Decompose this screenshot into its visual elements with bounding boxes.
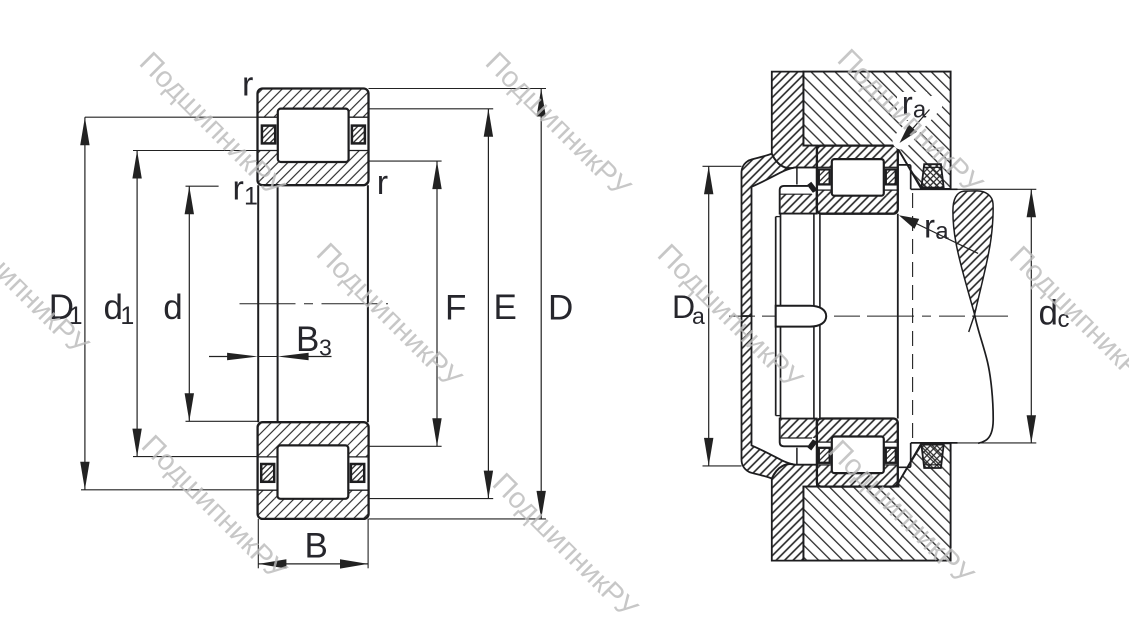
svg-text:B: B <box>296 320 319 359</box>
svg-text:ПодшипникРУ: ПодшипникРУ <box>486 467 644 625</box>
svg-text:F: F <box>445 289 466 328</box>
svg-text:3: 3 <box>319 335 332 361</box>
svg-text:ПодшипникРУ: ПодшипникРУ <box>1003 240 1129 398</box>
svg-text:D: D <box>548 289 573 328</box>
svg-text:ПодшипникРУ: ПодшипникРУ <box>0 204 95 362</box>
svg-text:a: a <box>935 218 949 245</box>
svg-text:B: B <box>305 527 328 566</box>
svg-text:ПодшипникРУ: ПодшипникРУ <box>479 46 637 204</box>
svg-text:1: 1 <box>120 302 134 330</box>
svg-text:d: d <box>163 288 182 327</box>
svg-text:r: r <box>924 208 935 245</box>
svg-text:r: r <box>377 164 388 202</box>
svg-text:E: E <box>494 288 517 327</box>
svg-text:r: r <box>242 65 253 103</box>
